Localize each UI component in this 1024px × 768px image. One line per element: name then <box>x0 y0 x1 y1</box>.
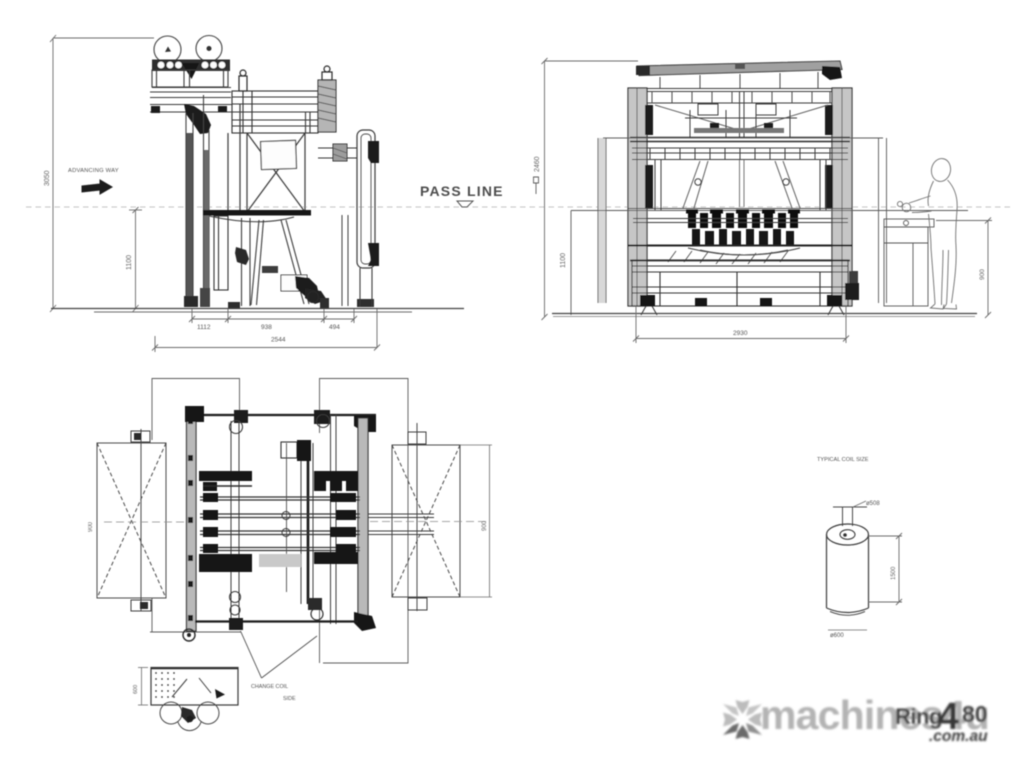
svg-text:ADVANCING WAY: ADVANCING WAY <box>68 168 119 174</box>
svg-text:600: 600 <box>133 685 139 694</box>
svg-text:1100: 1100 <box>126 255 133 270</box>
svg-text:938: 938 <box>261 324 272 331</box>
svg-text:494: 494 <box>329 324 340 331</box>
svg-text:SIDE: SIDE <box>283 696 296 702</box>
svg-text:CHANGE COIL: CHANGE COIL <box>251 684 288 690</box>
svg-text:.com.au: .com.au <box>929 728 988 745</box>
svg-text:1112: 1112 <box>197 324 211 331</box>
svg-text:Ring: Ring <box>895 704 942 729</box>
svg-text:1100: 1100 <box>560 253 567 268</box>
svg-text:PASS LINE: PASS LINE <box>420 183 504 199</box>
svg-text:ø508: ø508 <box>866 501 880 507</box>
svg-text:80: 80 <box>962 701 988 727</box>
svg-text:2460: 2460 <box>534 156 541 172</box>
svg-text:3050: 3050 <box>44 170 51 186</box>
svg-text:2544: 2544 <box>271 337 286 344</box>
svg-text:ø600: ø600 <box>830 633 844 639</box>
svg-text:900: 900 <box>88 521 94 532</box>
svg-text:900: 900 <box>979 269 986 280</box>
svg-text:TYPICAL COIL SIZE: TYPICAL COIL SIZE <box>817 457 869 463</box>
svg-text:2930: 2930 <box>733 330 748 337</box>
svg-text:1500: 1500 <box>891 566 897 580</box>
svg-text:900: 900 <box>482 520 488 531</box>
